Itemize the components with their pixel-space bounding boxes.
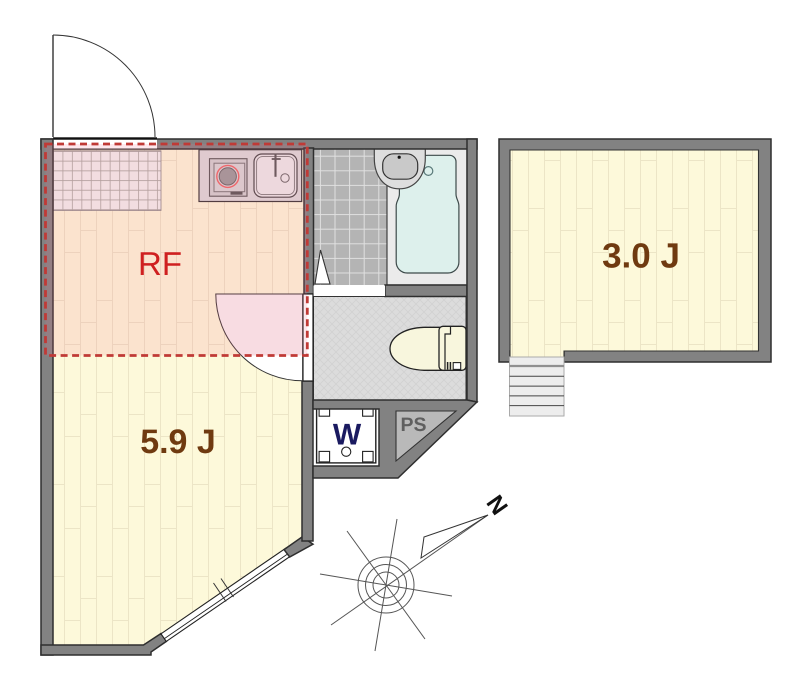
svg-text:5.9 J: 5.9 J: [140, 423, 216, 461]
svg-text:W: W: [333, 419, 362, 452]
svg-text:RF: RF: [138, 245, 182, 282]
svg-text:PS: PS: [400, 414, 426, 436]
svg-text:3.0 J: 3.0 J: [602, 237, 680, 276]
